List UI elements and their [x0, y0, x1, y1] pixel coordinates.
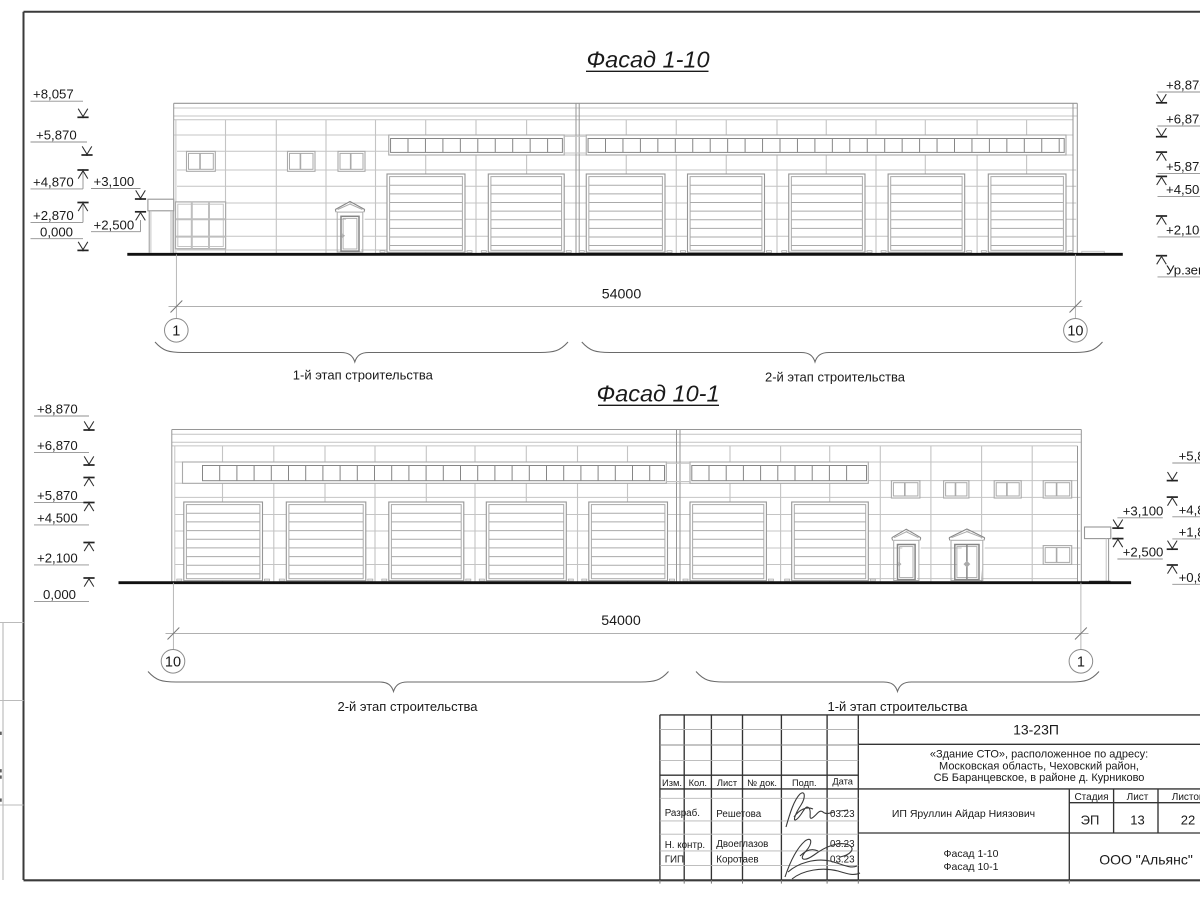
- svg-text:54000: 54000: [601, 613, 641, 629]
- svg-text:+2,870: +2,870: [33, 208, 74, 223]
- svg-text:Стадия: Стадия: [1074, 792, 1108, 803]
- svg-text:2-й этап строительства: 2-й этап строительства: [765, 370, 906, 385]
- svg-text:2-й этап строительства: 2-й этап строительства: [337, 699, 478, 714]
- svg-text:+3,100: +3,100: [94, 174, 135, 189]
- svg-text:+5,870: +5,870: [36, 128, 77, 143]
- svg-text:+4,500: +4,500: [1166, 182, 1200, 197]
- svg-text:+8,870: +8,870: [37, 402, 78, 417]
- svg-text:+8,057: +8,057: [33, 87, 74, 102]
- svg-text:+5,870: +5,870: [1166, 159, 1200, 174]
- svg-text:Коротаев: Коротаев: [716, 855, 758, 866]
- svg-text:+2,500: +2,500: [94, 217, 135, 232]
- svg-text:+5,870: +5,870: [1179, 449, 1200, 464]
- svg-text:«Здание СТО», расположенное по: «Здание СТО», расположенное по адресу:: [930, 749, 1148, 761]
- svg-text:Дата: Дата: [832, 777, 853, 787]
- svg-text:ЭП: ЭП: [1081, 813, 1100, 828]
- svg-text:+1,870: +1,870: [1179, 525, 1200, 540]
- svg-text:ООО "Альянс": ООО "Альянс": [1099, 852, 1193, 868]
- svg-text:Н. контр.: Н. контр.: [665, 840, 705, 851]
- svg-text:+2,100: +2,100: [1166, 223, 1200, 238]
- svg-text:Фасад 10-1: Фасад 10-1: [596, 381, 719, 407]
- svg-text:Подп.: Подп.: [792, 778, 817, 788]
- svg-text:СБ Баранцевское, в районе д. К: СБ Баранцевское, в районе д. Курниково: [934, 772, 1145, 784]
- svg-text:Фасад 1-10: Фасад 1-10: [586, 47, 709, 73]
- svg-text:Лист: Лист: [1127, 792, 1149, 803]
- svg-text:1: 1: [1077, 654, 1085, 670]
- svg-text:Лист: Лист: [717, 778, 738, 788]
- svg-text:+2,100: +2,100: [37, 551, 78, 566]
- svg-text:Ур.земли: Ур.земли: [1166, 263, 1200, 278]
- svg-text:54000: 54000: [602, 287, 642, 303]
- svg-text:Двоеглазов: Двоеглазов: [716, 839, 768, 850]
- svg-text:Разраб.: Разраб.: [665, 808, 700, 819]
- svg-text:ГИП: ГИП: [665, 855, 684, 866]
- svg-text:13-23П: 13-23П: [1013, 722, 1059, 738]
- svg-text:13: 13: [1130, 813, 1144, 828]
- svg-text:+6,870: +6,870: [1166, 112, 1200, 127]
- svg-text:№ док.: № док.: [747, 778, 777, 788]
- svg-text:+6,870: +6,870: [37, 438, 78, 453]
- svg-text:+4,500: +4,500: [37, 511, 78, 526]
- svg-text:+5,870: +5,870: [37, 488, 78, 503]
- svg-text:Фасад 10-1: Фасад 10-1: [944, 861, 999, 873]
- svg-text:+3,100: +3,100: [1123, 503, 1164, 518]
- svg-text:1: 1: [172, 323, 180, 339]
- svg-text:Изм.: Изм.: [662, 778, 682, 788]
- svg-text:+8,870: +8,870: [1166, 78, 1200, 93]
- svg-text:+4,870: +4,870: [1179, 502, 1200, 517]
- svg-text:Кол.: Кол.: [689, 778, 707, 788]
- svg-text:22: 22: [1181, 813, 1195, 828]
- svg-text:+4,870: +4,870: [33, 175, 74, 190]
- svg-text:10: 10: [165, 654, 181, 670]
- svg-text:+2,500: +2,500: [1123, 545, 1164, 560]
- svg-text:1-й этап строительства: 1-й этап строительства: [827, 699, 968, 714]
- svg-text:ИП Яруллин Айдар Ниязович: ИП Яруллин Айдар Ниязович: [892, 808, 1035, 820]
- svg-text:Московская область, Чеховский: Московская область, Чеховский район,: [939, 760, 1139, 772]
- svg-text:Листов: Листов: [1172, 792, 1200, 803]
- svg-text:10: 10: [1067, 323, 1083, 339]
- svg-text:Решетова: Решетова: [716, 809, 761, 820]
- svg-text:1-й этап строительства: 1-й этап строительства: [293, 368, 434, 383]
- svg-text:Фасад 1-10: Фасад 1-10: [944, 848, 999, 860]
- svg-text:0,000: 0,000: [43, 587, 76, 602]
- svg-text:+0,870: +0,870: [1179, 570, 1200, 585]
- svg-text:0,000: 0,000: [40, 224, 73, 239]
